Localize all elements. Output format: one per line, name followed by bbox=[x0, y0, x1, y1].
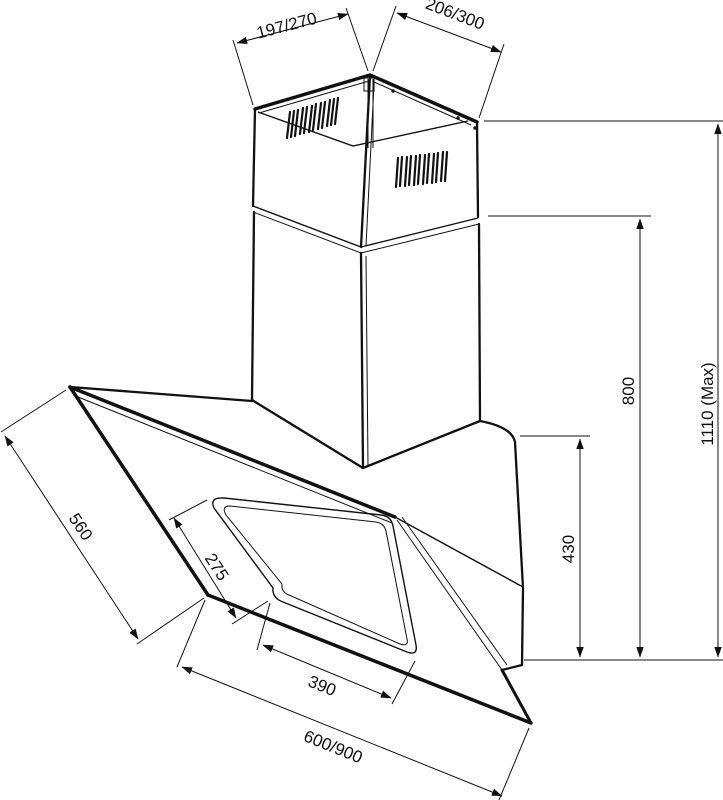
dim-label-chimney-height: 800 bbox=[619, 377, 638, 405]
technical-diagram-canvas: 197/270 206/300 1110 (Max) 800 430 560 bbox=[0, 0, 723, 800]
dim-label-chimney-top-left: 197/270 bbox=[254, 9, 318, 43]
dim-label-panel-depth: 560 bbox=[65, 510, 97, 544]
chimney-upper-section bbox=[253, 75, 478, 247]
vent-slots-right bbox=[396, 152, 447, 187]
dim-label-glass-width: 390 bbox=[305, 672, 338, 700]
dim-label-max-height: 1110 (Max) bbox=[698, 362, 717, 445]
dimension-body-height: 430 bbox=[520, 436, 590, 657]
dim-label-body-height: 430 bbox=[559, 535, 578, 563]
dim-label-hood-width: 600/900 bbox=[301, 727, 365, 768]
hood-body bbox=[70, 387, 531, 723]
hood-dimension-drawing: 197/270 206/300 1110 (Max) 800 430 560 bbox=[0, 0, 723, 800]
rim-screw-hole bbox=[391, 89, 394, 92]
glass-panel bbox=[213, 498, 417, 653]
dimension-glass-width: 390 bbox=[257, 603, 415, 704]
dimension-chimney-top-left: 197/270 bbox=[233, 8, 368, 105]
dimension-chimney-top-right: 206/300 bbox=[373, 0, 504, 118]
dim-label-glass-depth: 275 bbox=[201, 550, 232, 584]
rim-screw-hole bbox=[456, 116, 459, 119]
dimension-max-height: 1110 (Max) bbox=[484, 121, 723, 657]
dim-label-chimney-top-right: 206/300 bbox=[423, 0, 487, 34]
